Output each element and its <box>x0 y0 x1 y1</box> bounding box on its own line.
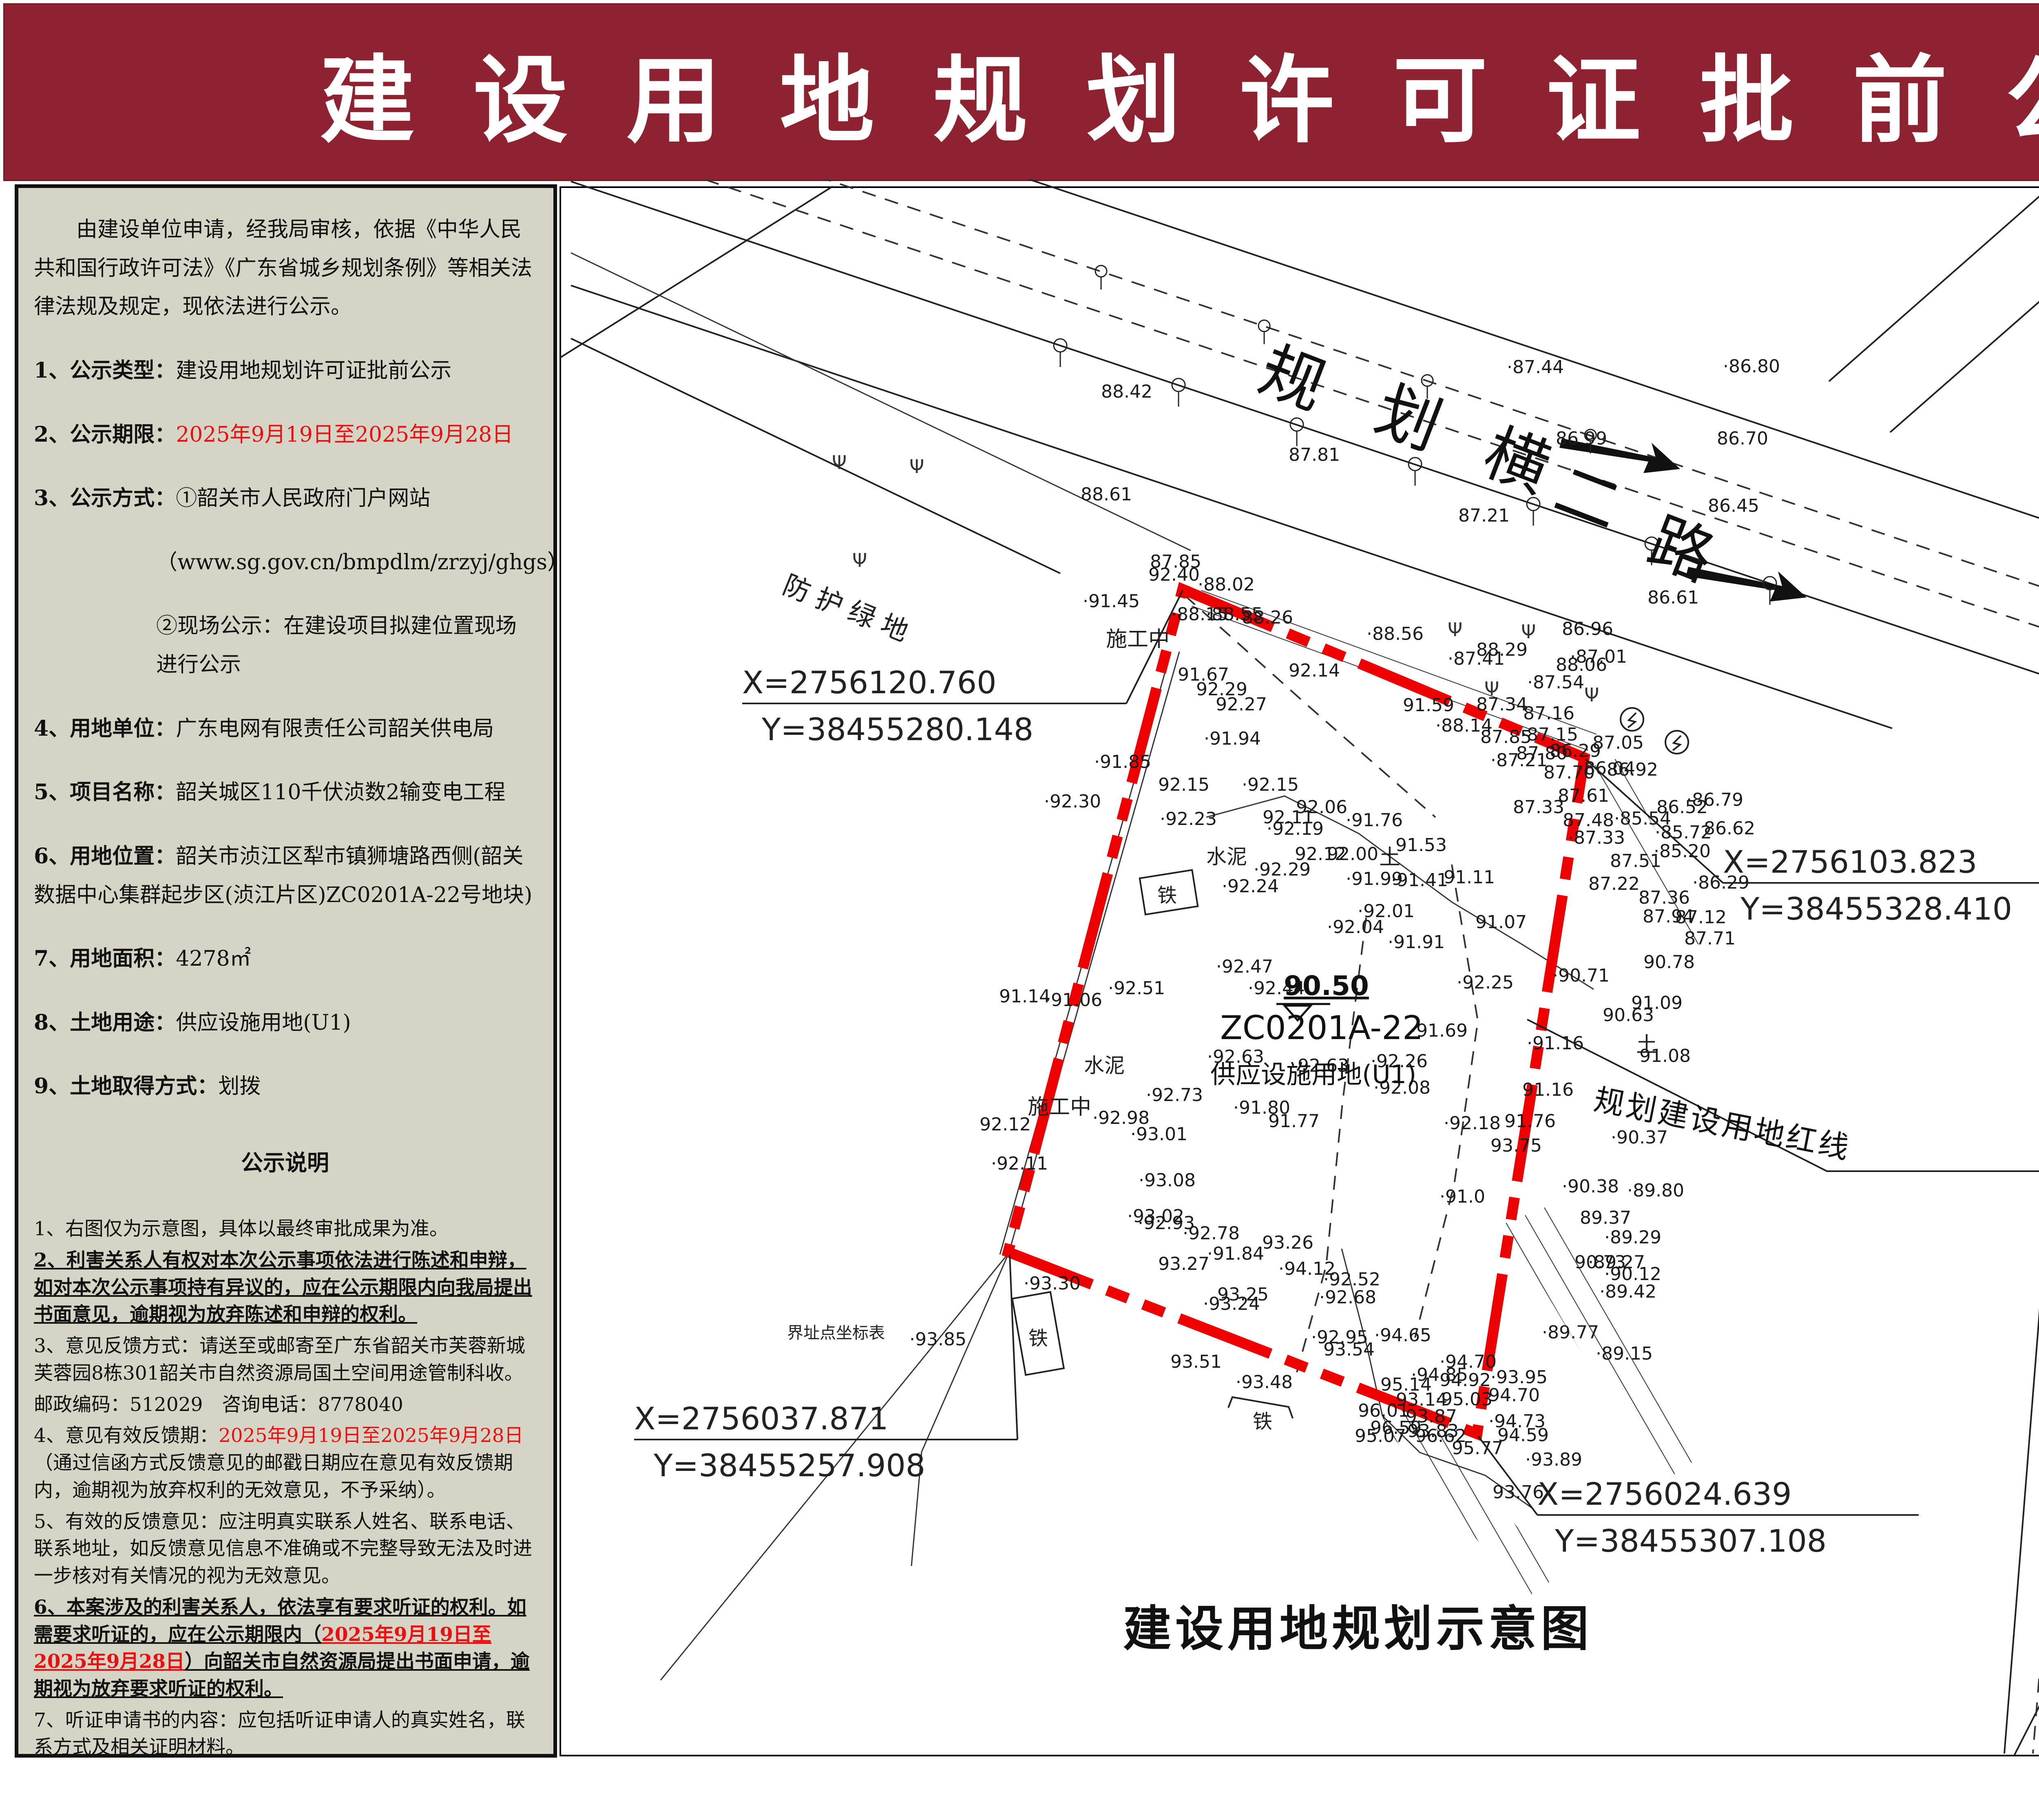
corner-x-coord: X=2756037.871 <box>634 1400 888 1437</box>
spot-elevation: 88.26 <box>1242 607 1293 628</box>
site-feature-label: 铁 <box>1253 1410 1272 1433</box>
spot-elevation: 87.33 <box>1513 797 1564 818</box>
spot-elevation: ·92.68 <box>1319 1287 1376 1308</box>
spot-elevation: 94.59 <box>1497 1425 1549 1446</box>
spot-elevation: 93.27 <box>1158 1254 1210 1274</box>
notice-paragraph: 1、公示类型：建设用地规划许可证批前公示 <box>34 352 536 390</box>
spot-elevation: 87.36 <box>1639 887 1690 908</box>
spot-elevation: ·93.08 <box>1139 1170 1196 1191</box>
side-road-lines <box>1829 179 2039 1754</box>
spot-elevation: ·89.29 <box>1604 1227 1661 1248</box>
spot-elevation: 92.40 <box>1148 564 1200 585</box>
corner-x-coord: X=2756103.823 <box>1723 844 1977 880</box>
spot-elevation: 93.75 <box>1491 1135 1542 1156</box>
notice-paragraph: 7、用地面积：4278㎡ <box>34 940 536 978</box>
spot-elevation: 88.42 <box>1101 381 1152 402</box>
vegetation-symbol: Ψ <box>1448 619 1462 641</box>
parcel-code-label: ZC0201A-22 <box>1220 1009 1423 1047</box>
spot-elevation: 91.77 <box>1268 1111 1320 1132</box>
vegetation-symbol: Ψ <box>852 549 867 571</box>
notice-panel: 由建设单位申请，经我局审核，依据《中华人民共和国行政许可法》《广东省城乡规划条例… <box>15 184 557 1758</box>
banner: 建设用地规划许可证批前公示 <box>3 3 2039 181</box>
spot-elevation: 93.26 <box>1262 1232 1314 1253</box>
spot-elevation: ·93.30 <box>1024 1273 1081 1294</box>
spot-elevation: ·89.42 <box>1599 1281 1656 1302</box>
corner-y-coord: Y=38455328.410 <box>1740 891 2012 927</box>
spot-elevation: ·90.71 <box>1552 965 1610 986</box>
spot-elevation: ·91.76 <box>1346 810 1403 831</box>
spot-elevation: ·86.79 <box>1686 789 1743 810</box>
spot-elevation: ·92.51 <box>1108 978 1165 999</box>
spot-elevation: 91.59 <box>1403 695 1454 716</box>
spot-elevation: 93.83 <box>1407 1421 1459 1442</box>
spot-elevation: 87.22 <box>1588 874 1640 894</box>
spot-elevation: 95.77 <box>1452 1438 1503 1459</box>
spot-elevation: 94.70 <box>1488 1385 1540 1406</box>
spot-elevation: 91.53 <box>1395 835 1447 856</box>
spot-elevation: ·92.73 <box>1146 1085 1203 1106</box>
notice-paragraph: ②现场公示：在建设项目拟建位置现场进行公示 <box>34 607 536 684</box>
parcel-use-label: 供应设施用地(U1) <box>1210 1059 1416 1089</box>
spot-elevation: 92.11 <box>1263 807 1314 828</box>
site-feature-label: 水泥 <box>1084 1054 1125 1077</box>
spot-elevation: 91.76 <box>1504 1111 1556 1132</box>
spot-elevation: ·93.85 <box>909 1329 966 1350</box>
spot-elevation: ·87.33 <box>1568 827 1625 848</box>
spot-elevation: 92.15 <box>1158 774 1210 795</box>
spot-elevation: ·91.85 <box>1094 752 1151 772</box>
spot-elevation: 92.12 <box>980 1114 1031 1135</box>
spot-elevation: 90.78 <box>1643 952 1695 973</box>
spot-elevation: 93.76 <box>1493 1482 1544 1503</box>
spot-elevation: ·88.56 <box>1367 624 1424 644</box>
spot-elevation: ·91.16 <box>1527 1033 1584 1054</box>
spot-elevation: 87.81 <box>1289 444 1340 465</box>
site-feature-label: 施工中 <box>1106 627 1170 652</box>
spot-elevation: 86.45 <box>1708 495 1759 516</box>
map-caption: 建设用地规划示意图 <box>563 1590 2039 1659</box>
spot-elevation: ·92.23 <box>1160 809 1217 829</box>
spot-elevation: ·91.06 <box>1045 990 1102 1011</box>
vegetation-symbol: Ψ <box>832 451 847 473</box>
spot-elevation: ·87.44 <box>1507 357 1564 378</box>
spot-elevation: ·85.72 <box>1655 822 1712 843</box>
spot-elevation: ·92.11 <box>991 1153 1048 1174</box>
spot-elevation: 90.63 <box>1603 1005 1654 1026</box>
spot-elevation: 95.07 <box>1355 1426 1406 1446</box>
corner-x-coord: X=2756024.639 <box>1537 1476 1791 1512</box>
spot-elevation: 87.71 <box>1684 928 1736 949</box>
spot-elevation: 86.70 <box>1717 428 1768 449</box>
green-belt-label: 防护绿地 <box>778 569 920 650</box>
spot-elevation: ·91.99 <box>1346 869 1403 889</box>
spot-elevation: 92.14 <box>1289 660 1340 681</box>
spot-elevation: ·90.38 <box>1562 1176 1619 1197</box>
spot-elevation: ·86.80 <box>1723 356 1780 377</box>
notice-paragraph: 7、听证申请书的内容：应包括听证申请人的真实姓名，联系方式及相关证明材料。 <box>34 1707 536 1758</box>
site-feature-label: 水泥 <box>1206 845 1247 869</box>
notice-paragraph: 公示说明 <box>34 1143 536 1183</box>
notice-paragraph: 2、利害关系人有权对本次公示事项依法进行陈述和申辩，如对本次公示事项持有异议的，… <box>34 1247 536 1329</box>
spot-elevation: ·94.65 <box>1374 1325 1431 1346</box>
spot-elevation: ·89.27 <box>1588 1252 1645 1273</box>
notice-paragraph: 8、土地用途：供应设施用地(U1) <box>34 1004 536 1042</box>
site-feature-label: 铁 <box>1028 1327 1048 1350</box>
spot-elevation: 91.14 <box>999 986 1050 1007</box>
spot-elevation: 87.21 <box>1458 505 1510 526</box>
spot-elevation: ·92.04 <box>1327 917 1384 938</box>
notice-paragraph: 1、右图仅为示意图，具体以最终审批成果为准。 <box>34 1216 536 1243</box>
site-feature-label: 施工中 <box>1028 1095 1091 1119</box>
spot-elevation: ·90.37 <box>1611 1127 1668 1148</box>
redline-map-label: 规划建设用地红线 <box>1591 1082 1854 1166</box>
notice-paragraph: （www.sg.gov.cn/bmpdlm/zrzyj/ghgs） <box>34 543 536 582</box>
spot-elevation: 89.37 <box>1580 1207 1631 1228</box>
spot-elevation: ·91.91 <box>1388 932 1445 953</box>
page-title: 建设用地规划许可证批前公示 <box>261 24 2039 161</box>
spot-elevation: ·87.21 <box>1491 750 1548 771</box>
corner-y-coord: Y=38455257.908 <box>653 1447 925 1484</box>
spot-elevation: ·92.25 <box>1457 972 1514 993</box>
notice-body: 由建设单位申请，经我局审核，依据《中华人民共和国行政许可法》《广东省城乡规划条例… <box>34 210 536 1758</box>
spot-elevation: ·88.02 <box>1198 574 1255 595</box>
spot-elevation: 86.96 <box>1562 619 1613 639</box>
spot-elevation: 87.61 <box>1558 785 1609 806</box>
corner-y-coord: Y=38455307.108 <box>1555 1523 1827 1559</box>
site-feature-label: 土 <box>1379 845 1400 870</box>
spot-elevation: 93.51 <box>1170 1351 1222 1372</box>
spot-elevation: 91.07 <box>1475 912 1527 933</box>
spot-elevation: ·91.84 <box>1207 1243 1264 1264</box>
spot-elevation: 91.11 <box>1444 867 1495 888</box>
spot-elevation: 86.62 <box>1704 818 1755 839</box>
spot-elevation: 87.34 <box>1476 694 1528 715</box>
site-feature-label: 土 <box>1636 1033 1657 1057</box>
spot-elevation: 86.99 <box>1556 428 1607 449</box>
site-plan-map: ΨΨΨΨΨΨΨ 88.42·87.44·86.8087.8186.9986.70… <box>557 179 2039 1762</box>
spot-elevation: ·92.78 <box>1183 1223 1240 1244</box>
notice-paragraph: 3、公示方式：①韶关市人民政府门户网站 <box>34 479 536 518</box>
spot-elevation: 93.54 <box>1323 1339 1375 1360</box>
spot-elevation: ·91.0 <box>1440 1186 1485 1207</box>
notice-paragraph: 4、意见有效反馈期：2025年9月19日至2025年9月28日（通过信函方式反馈… <box>34 1422 536 1504</box>
site-feature-label: 界址点坐标表 <box>787 1324 885 1342</box>
vegetation-symbol: Ψ <box>909 456 924 478</box>
spot-elevation: ·85.20 <box>1654 841 1711 862</box>
spot-elevation: ·89.15 <box>1596 1343 1653 1364</box>
spot-elevation: 88.29 <box>1476 639 1528 660</box>
spot-elevation: ·89.80 <box>1627 1180 1684 1201</box>
spot-elevation: 88.61 <box>1081 484 1132 505</box>
notice-paragraph: 2、公示期限：2025年9月19日至2025年9月28日 <box>34 416 536 454</box>
notice-paragraph: 邮政编码：512029 咨询电话：8778040 <box>34 1391 536 1419</box>
notice-paragraph: 6、用地位置：韶关市浈江区犁市镇狮塘路西侧(韶关数据中心集群起步区(浈江片区)Z… <box>34 837 536 914</box>
spot-elevation: ·91.94 <box>1204 728 1261 749</box>
corner-y-coord: Y=38455280.148 <box>761 711 1033 747</box>
spot-elevation: ·87.54 <box>1527 672 1584 693</box>
spot-elevation: ·93.48 <box>1236 1372 1293 1393</box>
notice-paragraph: 4、用地单位：广东电网有限责任公司韶关供电局 <box>34 710 536 748</box>
main-road-name-char: 划 <box>1366 373 1451 464</box>
spot-elevation: 87.16 <box>1523 703 1575 724</box>
spot-elevation: ·92.30 <box>1044 791 1101 812</box>
spot-elevation: ·92.24 <box>1222 876 1279 897</box>
notice-paragraph: 5、项目名称：韶关城区110千伏浈数2输变电工程 <box>34 773 536 812</box>
spot-elevation: ·92.15 <box>1242 774 1299 795</box>
spot-elevation: 91.16 <box>1522 1079 1574 1100</box>
notice-paragraph: 由建设单位申请，经我局审核，依据《中华人民共和国行政许可法》《广东省城乡规划条例… <box>34 210 536 326</box>
spot-elevation: ·89.77 <box>1542 1322 1599 1343</box>
vegetation-symbol: Ψ <box>1584 684 1599 706</box>
spot-elevation: ·92.47 <box>1216 956 1273 977</box>
notice-paragraph: 6、本案涉及的利害关系人，依法享有要求听证的权利。如需要求听证的，应在公示期限内… <box>34 1594 536 1703</box>
spot-elevation: 87.51 <box>1610 851 1661 871</box>
site-feature-label: 铁 <box>1157 884 1177 907</box>
spot-elevation: ·93.01 <box>1130 1124 1188 1145</box>
main-road-name-char: 路 <box>1639 504 1725 596</box>
main-road-name-char: 横 <box>1474 415 1560 507</box>
spot-elevation: ·91.45 <box>1083 591 1140 612</box>
notice-paragraph: 5、有效的反馈意见：应注明真实联系人姓名、联系电话、联系地址，如反馈意见信息不准… <box>34 1508 536 1590</box>
spot-elevation: ·92.18 <box>1444 1113 1501 1134</box>
benchmark-value: 90.50 <box>1284 970 1369 1002</box>
spot-elevation: 87.12 <box>1675 907 1727 928</box>
spot-elevation: 94.92 <box>1440 1370 1491 1391</box>
spot-elevation: 86.92 <box>1607 759 1658 780</box>
spot-elevation: 92.00 <box>1327 844 1378 865</box>
notice-paragraph: 3、意见反馈方式：请送至或邮寄至广东省韶关市芙蓉新城芙蓉园8栋301韶关市自然资… <box>34 1333 536 1387</box>
notice-paragraph: 9、土地取得方式：划拨 <box>34 1067 536 1106</box>
spot-elevation: 93.25 <box>1217 1284 1269 1305</box>
spot-elevation: 92.27 <box>1216 694 1267 715</box>
corner-x-coord: X=2756120.760 <box>742 664 996 701</box>
spot-elevation: ·93.89 <box>1525 1449 1582 1470</box>
